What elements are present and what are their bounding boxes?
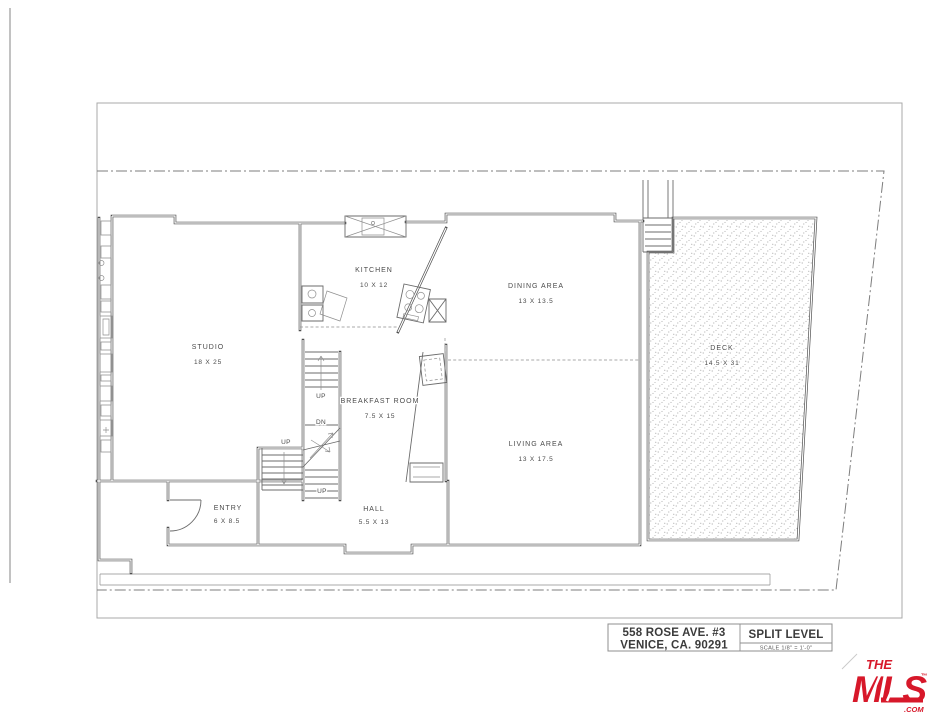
floorplan-canvas: STUDIO 18 X 25 KITCHEN 10 X 12 DINING AR… bbox=[0, 0, 932, 720]
hall-label: HALL bbox=[363, 506, 385, 513]
up-top-label: UP bbox=[316, 393, 326, 400]
logo-mls-text: MLS bbox=[852, 669, 927, 710]
entry-door bbox=[170, 500, 201, 531]
kitchen-label: KITCHEN bbox=[355, 267, 393, 274]
address-line1: 558 ROSE AVE. #3 bbox=[623, 627, 726, 639]
walkway-strip bbox=[100, 573, 770, 585]
title-block: 558 ROSE AVE. #3 VENICE, CA. 90291 SPLIT… bbox=[608, 624, 832, 652]
living-dims: 13 X 17.5 bbox=[518, 456, 553, 463]
up-bottom-label: UP bbox=[317, 488, 327, 495]
studio-dims: 18 X 25 bbox=[194, 359, 222, 366]
deck-label: DECK bbox=[710, 345, 733, 352]
dn-label: DN bbox=[316, 419, 326, 426]
floorplan-sheet: STUDIO 18 X 25 KITCHEN 10 X 12 DINING AR… bbox=[0, 0, 932, 720]
left-strip-fixtures bbox=[99, 221, 112, 452]
central-stairs bbox=[262, 352, 340, 498]
living-label: LIVING AREA bbox=[509, 441, 564, 448]
deck-stairs bbox=[643, 180, 673, 252]
breakfast-angled-wall bbox=[406, 352, 423, 482]
dining-label: DINING AREA bbox=[508, 283, 564, 290]
kitchen-dims: 10 X 12 bbox=[360, 282, 388, 289]
dining-dims: 13 X 13.5 bbox=[518, 298, 553, 305]
logo-tm-text: ™ bbox=[921, 673, 928, 680]
mls-logo: THE MLS ™ .COM bbox=[842, 654, 928, 714]
hall-dims: 5.5 X 13 bbox=[359, 519, 390, 526]
studio-label: STUDIO bbox=[192, 344, 224, 351]
logo-com-text: .COM bbox=[904, 705, 924, 714]
stove-icon bbox=[397, 284, 430, 323]
entry-dims: 6 X 8.5 bbox=[214, 518, 240, 525]
plan-type-label: SPLIT LEVEL bbox=[748, 629, 823, 641]
address-line2: VENICE, CA. 90291 bbox=[620, 640, 728, 652]
breakfast-label: BREAKFAST ROOM bbox=[341, 398, 420, 405]
deck-area bbox=[648, 218, 816, 540]
builtin-cabinet bbox=[410, 463, 443, 482]
fireplace bbox=[419, 354, 446, 386]
deck-dims: 14.5 X 31 bbox=[704, 360, 739, 367]
up-left-label: UP bbox=[281, 439, 291, 446]
logo-accent-line bbox=[842, 654, 857, 669]
entry-label: ENTRY bbox=[214, 505, 243, 512]
breakfast-dims: 7.5 X 15 bbox=[365, 413, 396, 420]
scale-note: SCALE 1/8" = 1'-0" bbox=[760, 646, 813, 652]
